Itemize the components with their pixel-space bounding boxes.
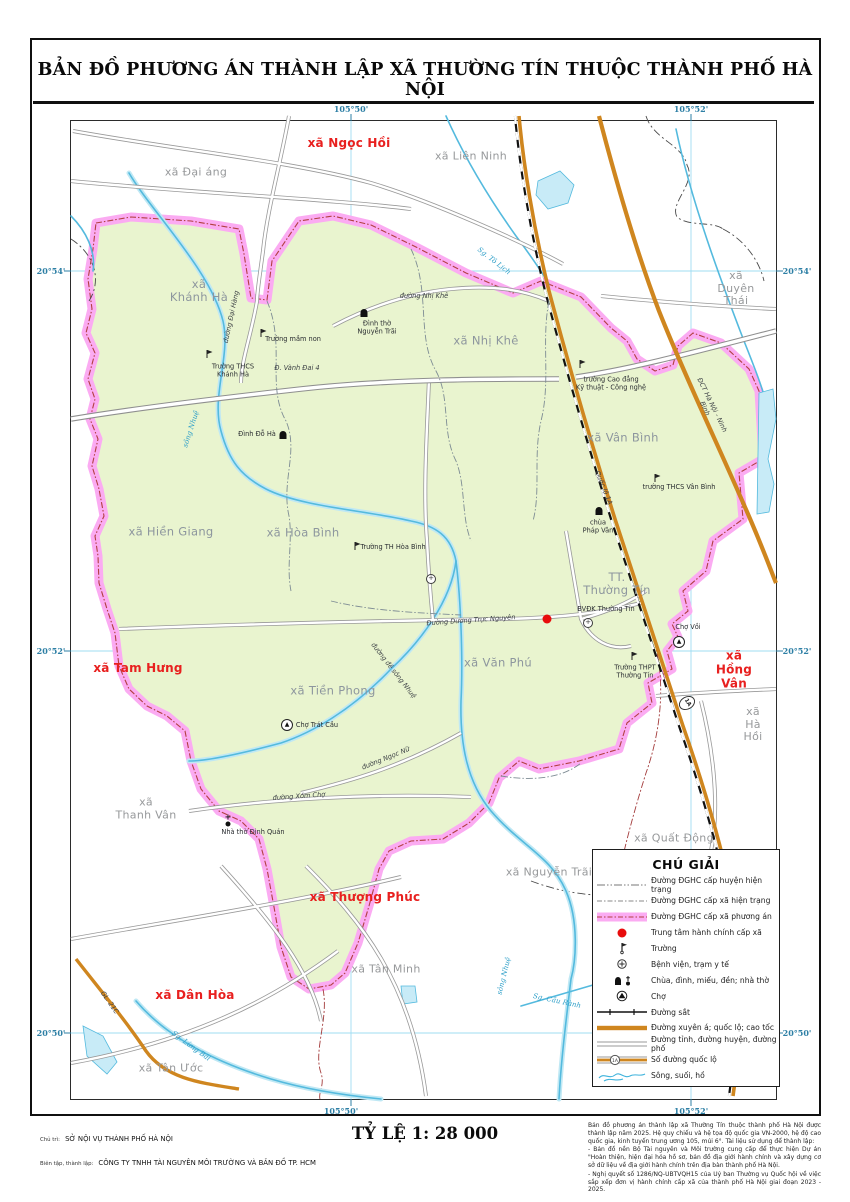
legend-item-label: Sông, suối, hồ <box>651 1071 705 1080</box>
legend-item-label: Đường tỉnh, đường huyện, đường phố <box>651 1035 779 1053</box>
legend-item-highway: Đường xuyên á; quốc lộ; cao tốc <box>593 1020 779 1036</box>
legend-item-label: Đường ĐGHC cấp huyện hiện trạng <box>651 876 779 894</box>
road-legend-icon <box>593 1038 651 1050</box>
legend-item-school: Trường <box>593 941 779 957</box>
boundary-plan-legend-icon <box>593 911 651 923</box>
legend-box: CHÚ GIẢI Đường ĐGHC cấp huyện hiện trạng… <box>592 849 780 1087</box>
legend-item-road-number: 1ASố đường quốc lộ <box>593 1052 779 1068</box>
legend-item-boundary-commune: Đường ĐGHC cấp xã hiện trạng <box>593 893 779 909</box>
boundary-district-legend-icon <box>593 879 651 891</box>
credit-editor-label: Biên tập, thành lập: <box>40 1161 93 1167</box>
legend-item-label: Chợ <box>651 992 666 1001</box>
title-divider <box>33 101 814 104</box>
note-line: - Bản đồ nền Bộ Tài nguyên và Môi trường… <box>588 1146 821 1169</box>
legend-item-temple: Chùa, đình, miếu, đền; nhà thờ <box>593 972 779 988</box>
legend-item-label: Bệnh viện, trạm y tế <box>651 960 729 969</box>
legend-item-label: Đường xuyên á; quốc lộ; cao tốc <box>651 1023 774 1032</box>
legend-item-market: Chợ <box>593 988 779 1004</box>
legend-item-label: Trường <box>651 944 677 953</box>
water-legend-icon <box>593 1069 651 1083</box>
legend-item-water: Sông, suối, hồ <box>593 1068 779 1084</box>
note-line: - Nghị quyết số 1286/NQ-UBTVQH15 của Uỷ … <box>588 1171 821 1194</box>
legend-items: Đường ĐGHC cấp huyện hiện trạngĐường ĐGH… <box>593 877 779 1084</box>
legend-item-label: Trung tâm hành chính cấp xã <box>651 928 762 937</box>
market-legend-icon <box>593 990 651 1002</box>
center-legend-icon <box>593 927 651 939</box>
credit-editor: CÔNG TY TNHH TÀI NGUYÊN MÔI TRƯỜNG VÀ BẢ… <box>98 1159 316 1167</box>
legend-item-boundary-district: Đường ĐGHC cấp huyện hiện trạng <box>593 877 779 893</box>
scale-label: TỶ LỆ 1: 28 000 <box>300 1124 550 1143</box>
credit-agency: SỞ NỘI VỤ THÀNH PHỐ HÀ NỘI <box>65 1135 173 1143</box>
legend-item-center: Trung tâm hành chính cấp xã <box>593 925 779 941</box>
credit-role-label: Chủ trì: <box>40 1137 60 1143</box>
legend-item-hospital: Bệnh viện, trạm y tế <box>593 956 779 972</box>
map-sheet: { "title": "BẢN ĐỒ PHƯƠNG ÁN THÀNH LẬP X… <box>0 0 850 1202</box>
school-legend-icon <box>593 942 651 955</box>
legend-item-road: Đường tỉnh, đường huyện, đường phố <box>593 1036 779 1052</box>
legend-item-label: Đường ĐGHC cấp xã hiện trạng <box>651 896 770 905</box>
legend-item-label: Đường sắt <box>651 1008 690 1017</box>
hospital-legend-icon <box>593 958 651 970</box>
legend-title: CHÚ GIẢI <box>593 857 779 872</box>
legend-item-label: Đường ĐGHC cấp xã phương án <box>651 912 772 921</box>
boundary-commune-legend-icon <box>593 895 651 907</box>
note-line: Bản đồ phương án thành lập xã Thường Tín… <box>588 1122 821 1145</box>
legend-item-label: Chùa, đình, miếu, đền; nhà thờ <box>651 976 769 985</box>
legend-item-label: Số đường quốc lộ <box>651 1055 717 1064</box>
legend-item-boundary-plan: Đường ĐGHC cấp xã phương án <box>593 909 779 925</box>
railway-legend-icon <box>593 1006 651 1018</box>
temple-legend-icon <box>593 974 651 987</box>
svg-text:1A: 1A <box>612 1058 619 1064</box>
road-number-legend-icon: 1A <box>593 1053 651 1067</box>
notes-block: Bản đồ phương án thành lập xã Thường Tín… <box>588 1122 821 1195</box>
legend-item-railway: Đường sắt <box>593 1004 779 1020</box>
page-title: BẢN ĐỒ PHƯƠNG ÁN THÀNH LẬP XÃ THƯỜNG TÍN… <box>30 60 820 100</box>
highway-legend-icon <box>593 1022 651 1034</box>
